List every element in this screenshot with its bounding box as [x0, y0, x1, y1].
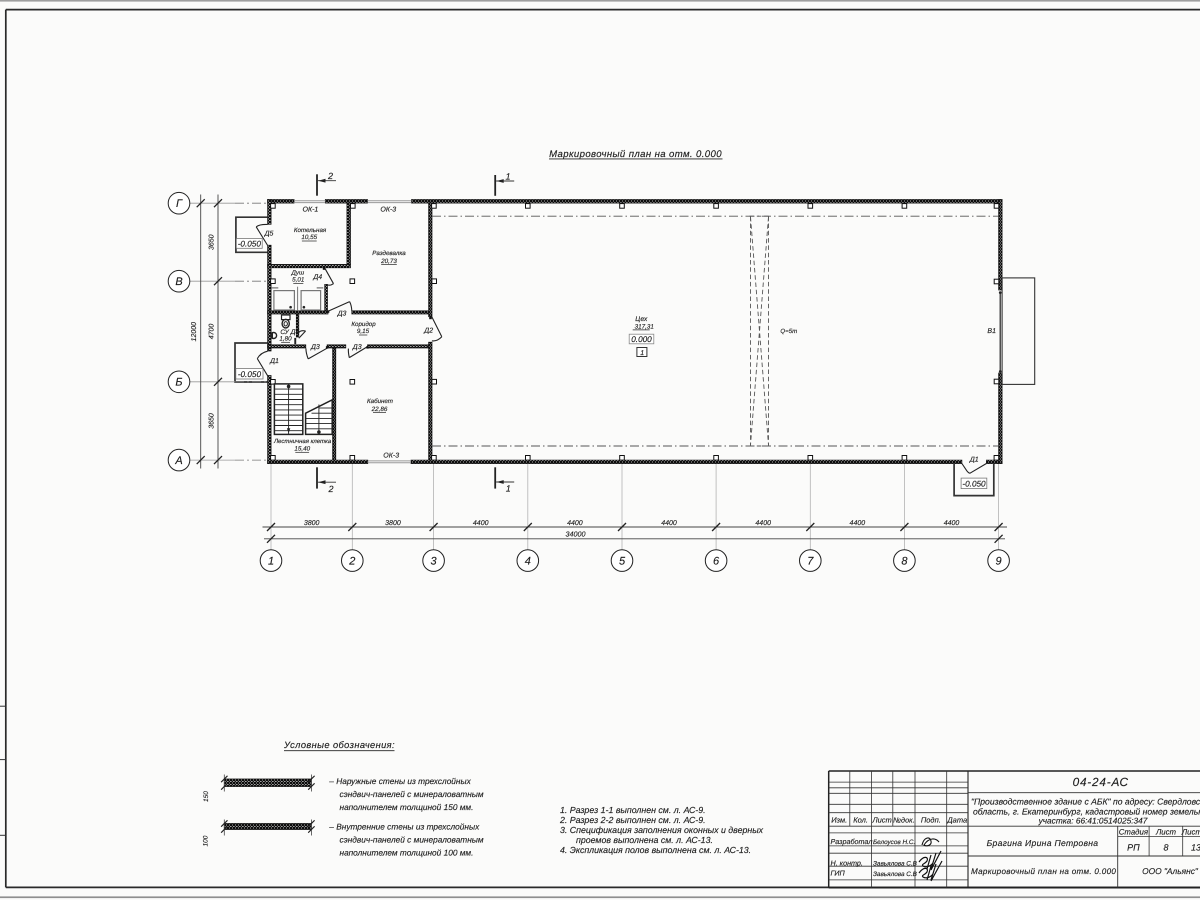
- svg-text:3650: 3650: [209, 413, 216, 429]
- svg-text:6: 6: [713, 555, 720, 567]
- svg-text:4400: 4400: [850, 520, 866, 527]
- svg-text:ГИП: ГИП: [831, 869, 846, 878]
- svg-text:наполнителем толщиной 150 мм.: наполнителем толщиной 150 мм.: [340, 802, 474, 812]
- svg-text:– Внутренние стены из трехсло: – Внутренние стены из трехслойных: [328, 822, 480, 832]
- svg-text:20,73: 20,73: [380, 258, 397, 265]
- svg-text:Завьялова С.В: Завьялова С.В: [873, 871, 918, 878]
- svg-text:"Производственное здание с АБК: "Производственное здание с АБК" по адрес…: [971, 797, 1200, 807]
- svg-text:3: 3: [431, 555, 438, 567]
- svg-text:проемов выполнена см. л. АС-13: проемов выполнена см. л. АС-13.: [576, 835, 713, 845]
- svg-text:– Наружные стены из трехслойн: – Наружные стены из трехслойных: [328, 776, 471, 786]
- svg-text:1,80: 1,80: [279, 336, 292, 343]
- svg-text:1: 1: [505, 171, 510, 181]
- svg-text:1: 1: [268, 555, 274, 567]
- svg-text:Д1: Д1: [269, 358, 279, 365]
- svg-text:Д3: Д3: [310, 344, 320, 351]
- svg-text:участка: 66:41:0514025:347: участка: 66:41:0514025:347: [1038, 816, 1148, 826]
- svg-text:100: 100: [203, 835, 210, 846]
- svg-text:1: 1: [506, 484, 511, 494]
- svg-text:Д3: Д3: [352, 344, 362, 351]
- svg-text:Разработал: Разработал: [831, 837, 873, 846]
- svg-text:3650: 3650: [209, 234, 216, 250]
- svg-text:2: 2: [327, 484, 333, 494]
- svg-text:04-24-АС: 04-24-АС: [1073, 775, 1129, 789]
- svg-text:Лист: Лист: [1155, 828, 1177, 837]
- svg-text:-0.050: -0.050: [238, 370, 262, 379]
- svg-text:Маркировочный план на отм. 0.0: Маркировочный план на отм. 0.000: [549, 149, 722, 160]
- svg-text:Белоусов Н.С.: Белоусов Н.С.: [873, 839, 915, 846]
- svg-text:2. Разрез 2-2 выполнен см. л.: 2. Разрез 2-2 выполнен см. л. АС-9.: [559, 815, 706, 825]
- svg-text:1. Разрез 1-1 выполнен см. л.: 1. Разрез 1-1 выполнен см. л. АС-9.: [560, 805, 706, 815]
- svg-text:3800: 3800: [385, 520, 401, 527]
- svg-text:4400: 4400: [661, 520, 677, 527]
- svg-text:ООО "Альянс": ООО "Альянс": [1142, 866, 1199, 876]
- svg-text:3. Спецификация заполнения око: 3. Спецификация заполнения оконных и две…: [560, 825, 764, 835]
- svg-text:22,86: 22,86: [371, 406, 388, 413]
- svg-text:РП: РП: [1127, 842, 1140, 852]
- svg-text:сэндвич-панелей с минераловатн: сэндвич-панелей с минераловатным: [340, 835, 484, 845]
- svg-text:Д1: Д1: [969, 457, 979, 464]
- svg-text:Дата: Дата: [946, 816, 967, 825]
- svg-text:ОК-1: ОК-1: [303, 206, 319, 213]
- svg-text:Н. контр.: Н. контр.: [831, 858, 863, 867]
- svg-text:8: 8: [1163, 842, 1168, 852]
- svg-text:7: 7: [807, 555, 814, 567]
- svg-text:Лист: Лист: [871, 816, 891, 825]
- svg-text:5: 5: [619, 555, 626, 567]
- svg-text:4400: 4400: [755, 520, 771, 527]
- svg-text:4700: 4700: [209, 324, 216, 340]
- svg-text:Брагина Ирина Петровна: Брагина Ирина Петровна: [987, 838, 1099, 848]
- svg-text:5,01: 5,01: [292, 277, 304, 284]
- svg-text:Коридор: Коридор: [351, 321, 376, 328]
- svg-text:Стадия: Стадия: [1119, 828, 1149, 837]
- svg-text:Лестничная клетка: Лестничная клетка: [273, 438, 332, 445]
- svg-text:Изм.: Изм.: [831, 816, 847, 825]
- svg-text:13: 13: [1191, 842, 1200, 852]
- svg-text:наполнителем толщиной 100 мм.: наполнителем толщиной 100 мм.: [340, 848, 474, 858]
- svg-text:Листов: Листов: [1181, 828, 1200, 837]
- svg-text:4: 4: [525, 555, 531, 567]
- svg-text:-0.050: -0.050: [962, 479, 986, 488]
- svg-text:2: 2: [327, 171, 333, 181]
- svg-text:А: А: [174, 455, 182, 467]
- svg-text:ОК-3: ОК-3: [380, 206, 396, 213]
- svg-text:В: В: [175, 276, 182, 288]
- svg-text:№док.: №док.: [893, 816, 914, 825]
- svg-text:Котельная: Котельная: [294, 227, 327, 234]
- svg-text:317,31: 317,31: [635, 323, 654, 330]
- svg-text:4400: 4400: [473, 520, 489, 527]
- svg-text:Подп.: Подп.: [921, 816, 941, 825]
- svg-text:Д2: Д2: [423, 328, 433, 335]
- svg-text:В1: В1: [987, 328, 996, 335]
- svg-text:4400: 4400: [944, 520, 960, 527]
- svg-text:0.000: 0.000: [631, 335, 652, 344]
- svg-text:Маркировочный план на отм. 0.0: Маркировочный план на отм. 0.000: [971, 867, 1116, 876]
- svg-text:1: 1: [640, 350, 644, 357]
- svg-text:4400: 4400: [567, 520, 583, 527]
- svg-text:8: 8: [901, 555, 908, 567]
- svg-text:3800: 3800: [304, 520, 320, 527]
- svg-text:Д3: Д3: [337, 310, 347, 317]
- svg-text:Раздевалка: Раздевалка: [372, 250, 406, 257]
- svg-text:Цех: Цех: [635, 316, 648, 323]
- svg-text:Д5: Д5: [264, 230, 274, 237]
- svg-text:Д4: Д4: [312, 274, 322, 281]
- svg-text:Кабинет: Кабинет: [367, 398, 393, 405]
- svg-text:4. Экспликация полов выполнена: 4. Экспликация полов выполнена см. л. АС…: [560, 845, 751, 855]
- svg-text:Б: Б: [175, 377, 182, 389]
- svg-text:ОК-3: ОК-3: [383, 453, 399, 460]
- svg-text:12000: 12000: [191, 322, 198, 342]
- svg-text:34000: 34000: [566, 530, 586, 539]
- svg-text:15,40: 15,40: [294, 446, 310, 453]
- svg-text:Г: Г: [176, 198, 183, 210]
- svg-text:Условные обозначения:: Условные обозначения:: [283, 740, 395, 750]
- svg-text:9: 9: [996, 555, 1002, 567]
- svg-text:-0.050: -0.050: [238, 239, 262, 248]
- svg-text:Кол.: Кол.: [853, 816, 868, 825]
- svg-text:Завьялова С.В: Завьялова С.В: [873, 860, 918, 867]
- svg-text:150: 150: [203, 791, 210, 802]
- svg-text:2: 2: [348, 555, 355, 567]
- svg-text:10,55: 10,55: [301, 234, 317, 241]
- svg-text:Q=5т: Q=5т: [780, 328, 797, 335]
- svg-text:Душ: Душ: [290, 270, 305, 277]
- svg-text:сэндвич-панелей с минераловатн: сэндвич-панелей с минераловатным: [340, 789, 484, 799]
- svg-text:9,15: 9,15: [357, 328, 370, 335]
